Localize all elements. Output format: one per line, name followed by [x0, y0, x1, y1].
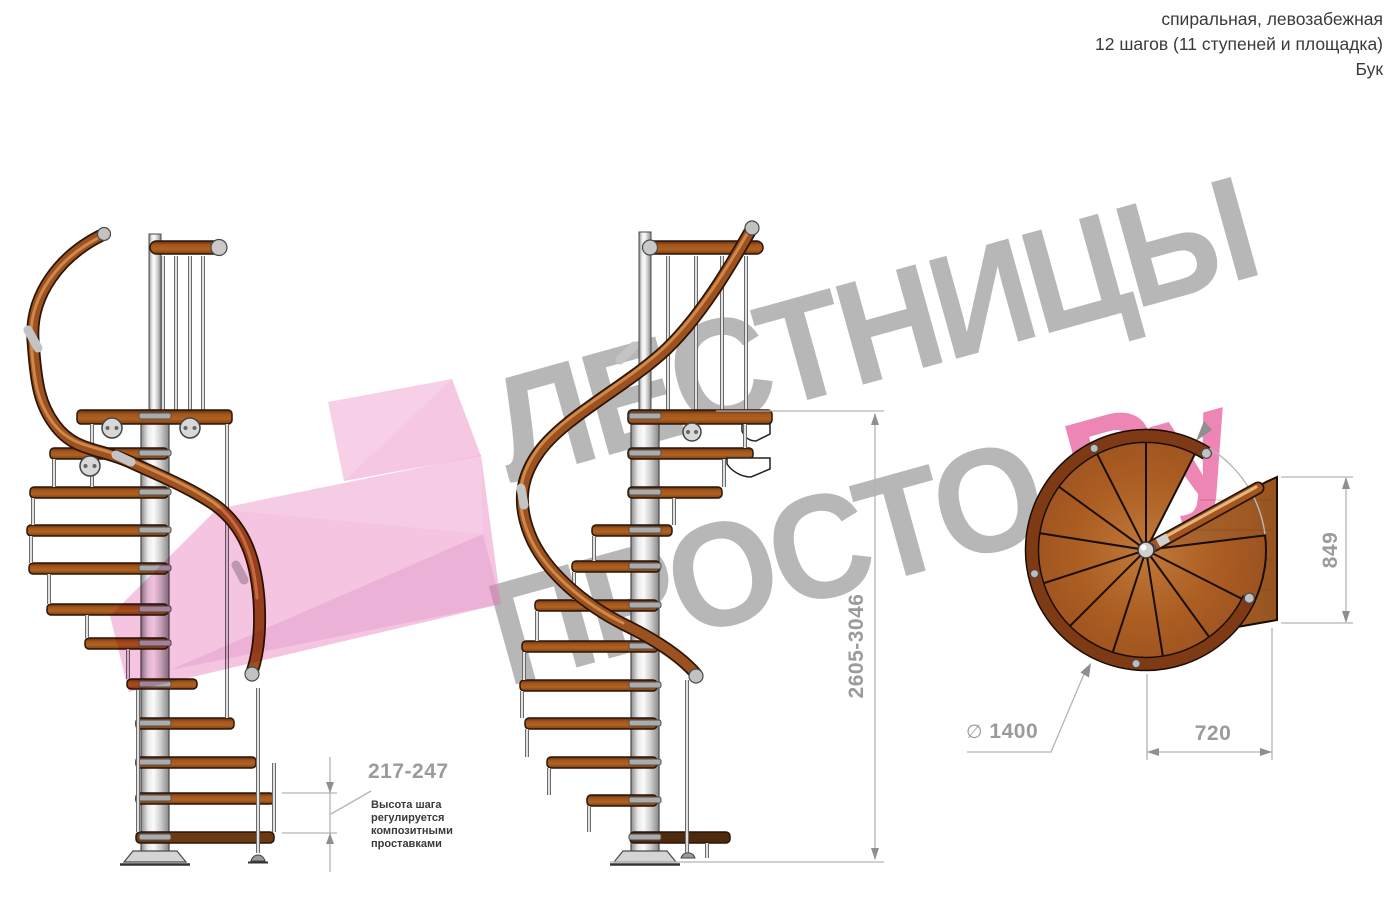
spec-text-block: спиральная, левозабежная 12 шагов (11 ст…: [1095, 7, 1383, 82]
center-column-hub: [1138, 542, 1154, 558]
middle-elevation-view: [520, 221, 772, 865]
plan-view: [1025, 421, 1277, 670]
rotation-arrow: [1196, 421, 1212, 441]
dimension-step-height: [282, 757, 371, 872]
spec-line-steps: 12 шагов (11 ступеней и площадка): [1095, 32, 1383, 57]
rail-end-cap: [643, 240, 658, 255]
column-base: [614, 851, 676, 862]
rail-end-cap: [211, 240, 227, 256]
diameter-label: ∅ 1400: [966, 720, 1038, 744]
spec-line-material: Бук: [1095, 57, 1383, 82]
landing-depth-label: 849: [1319, 520, 1343, 580]
connector-disc: [683, 423, 701, 441]
step-height-note: Высота шага регулируется композитными пр…: [371, 799, 471, 851]
technical-drawing: [0, 0, 1400, 907]
column-base: [124, 851, 186, 862]
step-height-label: 217-247: [368, 760, 449, 784]
diameter-symbol: ∅: [966, 722, 983, 743]
landing-width-label: 720: [1182, 722, 1244, 746]
total-height-label: 2605-3046: [845, 586, 869, 706]
drawing-sheet: спиральная, левозабежная 12 шагов (11 ст…: [0, 0, 1400, 907]
spec-line-type: спиральная, левозабежная: [1095, 7, 1383, 32]
